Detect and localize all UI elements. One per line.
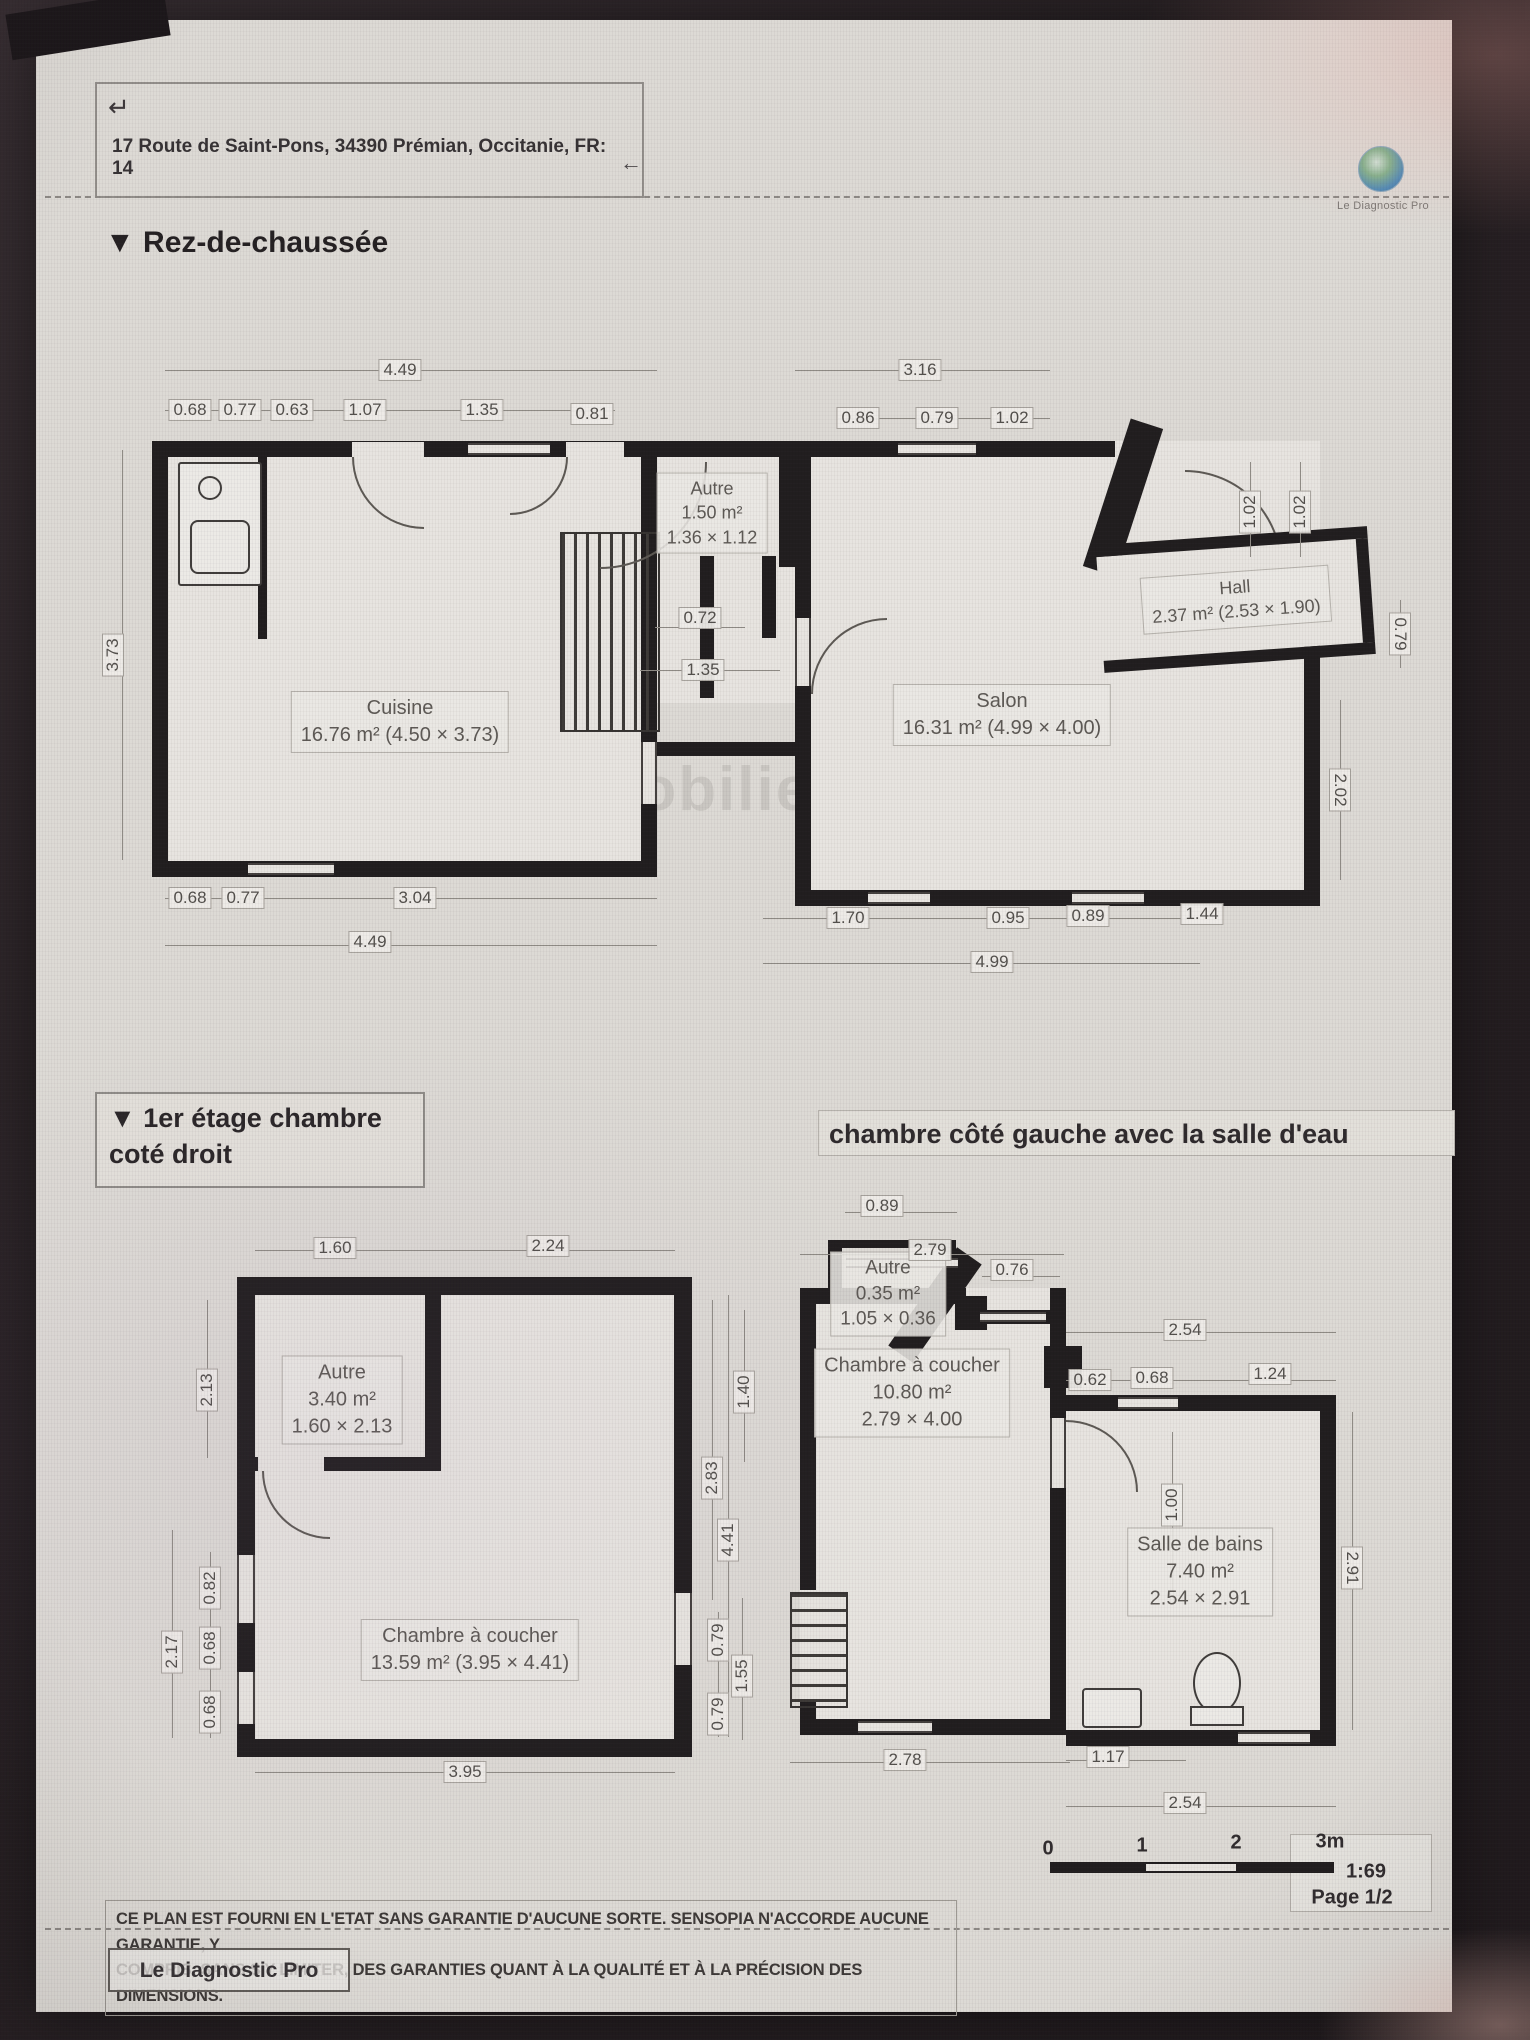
dim-label: 0.68 [199, 1690, 221, 1733]
dim-label: 4.49 [378, 359, 421, 381]
dim-label: 2.17 [161, 1630, 183, 1673]
room-area: 13.59 m² (3.95 × 4.41) [371, 1650, 569, 1677]
door-opening [641, 742, 657, 804]
door-opening [1050, 1418, 1066, 1488]
dim-line [165, 945, 657, 946]
wall [1320, 1411, 1336, 1730]
scale-tick: 3m [1316, 1831, 1345, 1854]
wall [800, 1304, 816, 1590]
scale-bar [1050, 1862, 1334, 1873]
room-area: 16.31 m² (4.99 × 4.00) [903, 715, 1101, 742]
window [237, 1672, 255, 1724]
dim-label: 0.76 [990, 1259, 1033, 1281]
section-title-ground-floor: ▼ Rez-de-chaussée [105, 226, 388, 260]
dim-line [712, 1300, 713, 1600]
dim-label: 1.02 [990, 407, 1033, 429]
dim-label: 0.62 [1068, 1369, 1111, 1391]
door-opening [566, 442, 624, 457]
wall [237, 1739, 692, 1757]
wall [657, 441, 795, 457]
dim-label: 4.41 [717, 1518, 739, 1561]
diagnostic-pro-logo-icon [1358, 146, 1404, 192]
wall [152, 457, 168, 861]
wall [779, 457, 795, 567]
room-dims: 1.05 × 0.36 [840, 1307, 936, 1333]
dim-label: 0.77 [221, 887, 264, 909]
window [898, 443, 976, 455]
dim-label: 2.78 [883, 1749, 926, 1771]
wall [152, 861, 657, 877]
door-opening [1118, 1397, 1178, 1409]
brand-label: Le Diagnostic Pro [108, 1948, 350, 1992]
wall [674, 1295, 692, 1739]
room-area: 16.76 m² (4.50 × 3.73) [301, 722, 499, 749]
dim-label: 0.79 [707, 1692, 729, 1735]
window [858, 1721, 932, 1733]
dim-label: 0.68 [168, 887, 211, 909]
dim-label: 1.35 [460, 399, 503, 421]
section-title-floor1-left: chambre côté gauche avec la salle d'eau [818, 1110, 1455, 1156]
window [674, 1593, 692, 1665]
window [237, 1555, 255, 1623]
room-name: Salon [903, 688, 1101, 715]
faucet-icon [198, 476, 222, 500]
dim-label: 3.04 [393, 887, 436, 909]
dim-label: 1.02 [1239, 490, 1261, 533]
dim-label: 2.02 [1329, 768, 1351, 811]
dim-label: 2.79 [908, 1239, 951, 1261]
toilet-icon [1193, 1652, 1241, 1714]
room-dims: 2.79 × 4.00 [824, 1407, 1000, 1434]
dim-label: 1.70 [826, 907, 869, 929]
dim-line [728, 1295, 729, 1737]
dim-label: 0.95 [986, 907, 1029, 929]
scale-tick: 1 [1136, 1835, 1147, 1858]
door-opening [352, 442, 424, 457]
dim-label: 1.40 [733, 1370, 755, 1413]
dim-label: 0.79 [1389, 612, 1411, 655]
dim-label: 0.81 [570, 403, 613, 425]
dim-label: 1.55 [731, 1654, 753, 1697]
room-dims: 1.60 × 2.13 [292, 1414, 393, 1441]
wall [800, 1719, 1066, 1735]
room-name: Autre [292, 1360, 393, 1387]
dim-label: 0.68 [199, 1626, 221, 1669]
dim-label: 2.54 [1163, 1319, 1206, 1341]
autre-etage-droit-label: Autre 3.40 m² 1.60 × 2.13 [282, 1356, 403, 1445]
autre-rdc-label: Autre 1.50 m² 1.36 × 1.12 [657, 473, 768, 554]
room-area: 0.35 m² [840, 1281, 936, 1307]
window [1238, 1732, 1310, 1744]
toilet-tank-icon [1190, 1706, 1244, 1726]
triangle-marker-icon: ▼ [109, 1103, 136, 1133]
autre-etage-gauche-label: Autre 0.35 m² 1.05 × 0.36 [830, 1252, 946, 1337]
dim-label: 3.16 [898, 359, 941, 381]
dim-label: 1.02 [1289, 490, 1311, 533]
cuisine-label: Cuisine 16.76 m² (4.50 × 3.73) [291, 691, 509, 753]
back-arrow-icon: ← [620, 150, 642, 176]
room-area: 1.50 m² [667, 501, 758, 525]
door-opening [980, 1312, 1046, 1322]
wall [237, 1277, 692, 1295]
room-area: 10.80 m² [824, 1380, 1000, 1407]
sink-icon [1082, 1688, 1142, 1728]
dim-label: 0.68 [1130, 1367, 1173, 1389]
room-name: Autre [667, 477, 758, 501]
dim-label: 0.63 [270, 399, 313, 421]
window [468, 443, 550, 455]
door-opening [258, 1457, 324, 1471]
dim-label: 0.68 [168, 399, 211, 421]
dim-label: 0.72 [678, 607, 721, 629]
room-dims: 1.36 × 1.12 [667, 525, 758, 549]
dim-label: 1.24 [1248, 1363, 1291, 1385]
section-title-floor1-right: ▼ 1er étage chambre coté droit [95, 1092, 425, 1188]
scale-tick: 0 [1042, 1838, 1053, 1861]
page-number: Page 1/2 [1311, 1887, 1392, 1910]
door-opening [795, 618, 811, 686]
dashed-divider [45, 196, 1449, 198]
dim-label: 2.13 [196, 1368, 218, 1411]
room-dims: 2.54 × 2.91 [1137, 1586, 1263, 1613]
scale-tick: 2 [1230, 1832, 1241, 1855]
dim-label: 2.91 [1341, 1546, 1363, 1589]
salon-label: Salon 16.31 m² (4.99 × 4.00) [893, 684, 1111, 746]
return-icon: ↵ [108, 92, 130, 123]
triangle-marker-icon: ▼ [105, 226, 135, 259]
dim-label: 1.17 [1086, 1746, 1129, 1768]
staircase-icon [790, 1592, 848, 1708]
room-area: 3.40 m² [292, 1387, 393, 1414]
dim-label: 0.79 [915, 407, 958, 429]
salle-de-bains-label: Salle de bains 7.40 m² 2.54 × 2.91 [1127, 1528, 1273, 1617]
dim-line [790, 1762, 1070, 1763]
dim-label: 0.86 [836, 407, 879, 429]
hall-annex: Hall 2.37 m² (2.53 × 1.90) [1096, 526, 1376, 673]
dim-label: 0.77 [218, 399, 261, 421]
room-area: 7.40 m² [1137, 1559, 1263, 1586]
room-name: Cuisine [301, 695, 499, 722]
dim-label: 1.00 [1161, 1483, 1183, 1526]
address-text: 17 Route de Saint-Pons, 34390 Prémian, O… [112, 136, 632, 180]
window [1072, 892, 1144, 904]
dim-label: 0.82 [199, 1566, 221, 1609]
basin-icon [190, 520, 250, 574]
wall [1066, 1395, 1336, 1411]
dim-label: 2.54 [1163, 1792, 1206, 1814]
dim-label: 0.79 [707, 1618, 729, 1661]
diagnostic-pro-logo-text: Le Diagnostic Pro [1308, 200, 1458, 212]
chambre-gauche-label: Chambre à coucher 10.80 m² 2.79 × 4.00 [814, 1349, 1010, 1438]
photo-of-screen: ↵ 17 Route de Saint-Pons, 34390 Prémian,… [0, 0, 1530, 2040]
wall [762, 556, 776, 638]
dim-label: 4.99 [970, 951, 1013, 973]
dim-label: 4.49 [348, 931, 391, 953]
dim-label: 3.73 [102, 633, 124, 676]
window [248, 863, 334, 875]
dim-label: 0.89 [860, 1195, 903, 1217]
dim-label: 1.07 [343, 399, 386, 421]
dim-label: 2.83 [701, 1456, 723, 1499]
dim-label: 1.44 [1180, 903, 1223, 925]
room-name: Chambre à coucher [824, 1353, 1000, 1380]
dim-label: 3.95 [443, 1761, 486, 1783]
dim-label: 1.35 [681, 659, 724, 681]
scale-ratio: 1:69 [1346, 1861, 1386, 1884]
window [868, 892, 930, 904]
wall [425, 1295, 441, 1457]
chambre-droite-label: Chambre à coucher 13.59 m² (3.95 × 4.41) [361, 1619, 579, 1681]
room-name: Salle de bains [1137, 1532, 1263, 1559]
wall [641, 742, 811, 756]
dim-label: 1.60 [313, 1237, 356, 1259]
dim-label: 2.24 [526, 1235, 569, 1257]
dim-label: 0.89 [1066, 905, 1109, 927]
room-name: Chambre à coucher [371, 1623, 569, 1650]
